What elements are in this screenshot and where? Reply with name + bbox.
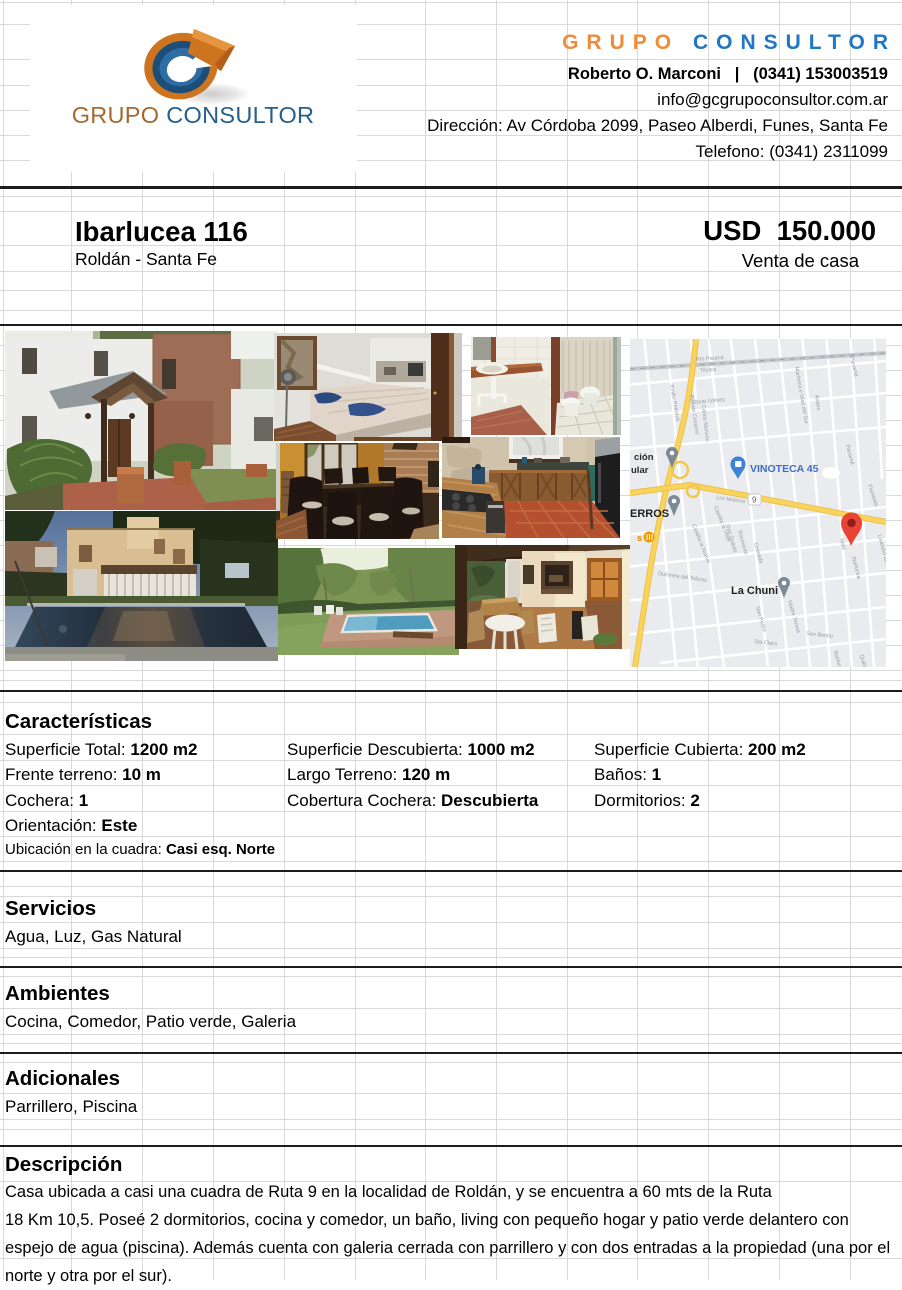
svg-text:La Chuni: La Chuni bbox=[731, 585, 778, 597]
svg-text:VINOTECA 45: VINOTECA 45 bbox=[750, 463, 819, 475]
svg-text:ERROS: ERROS bbox=[630, 508, 669, 520]
svg-text:9: 9 bbox=[752, 496, 757, 505]
svg-text:ción: ción bbox=[634, 452, 654, 463]
svg-text:Tilcara: Tilcara bbox=[700, 367, 718, 374]
svg-text:ular: ular bbox=[631, 465, 649, 476]
svg-text:s: s bbox=[637, 533, 642, 543]
